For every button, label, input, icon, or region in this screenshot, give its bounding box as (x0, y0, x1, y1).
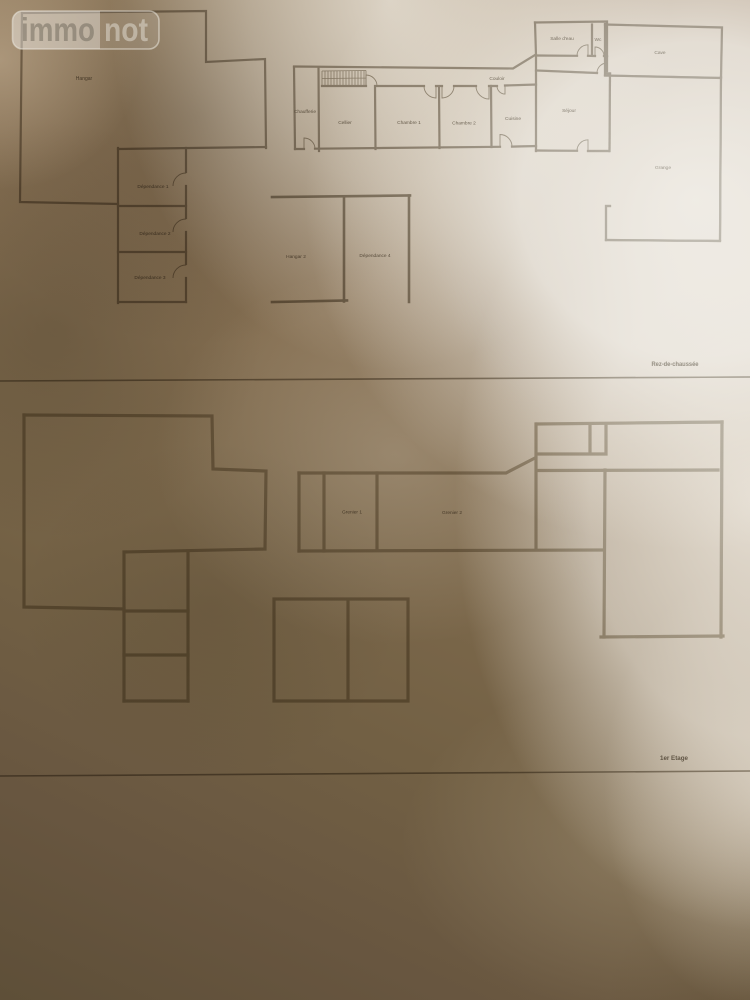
svg-text:not: not (104, 11, 148, 48)
svg-text:immo: immo (21, 11, 95, 48)
